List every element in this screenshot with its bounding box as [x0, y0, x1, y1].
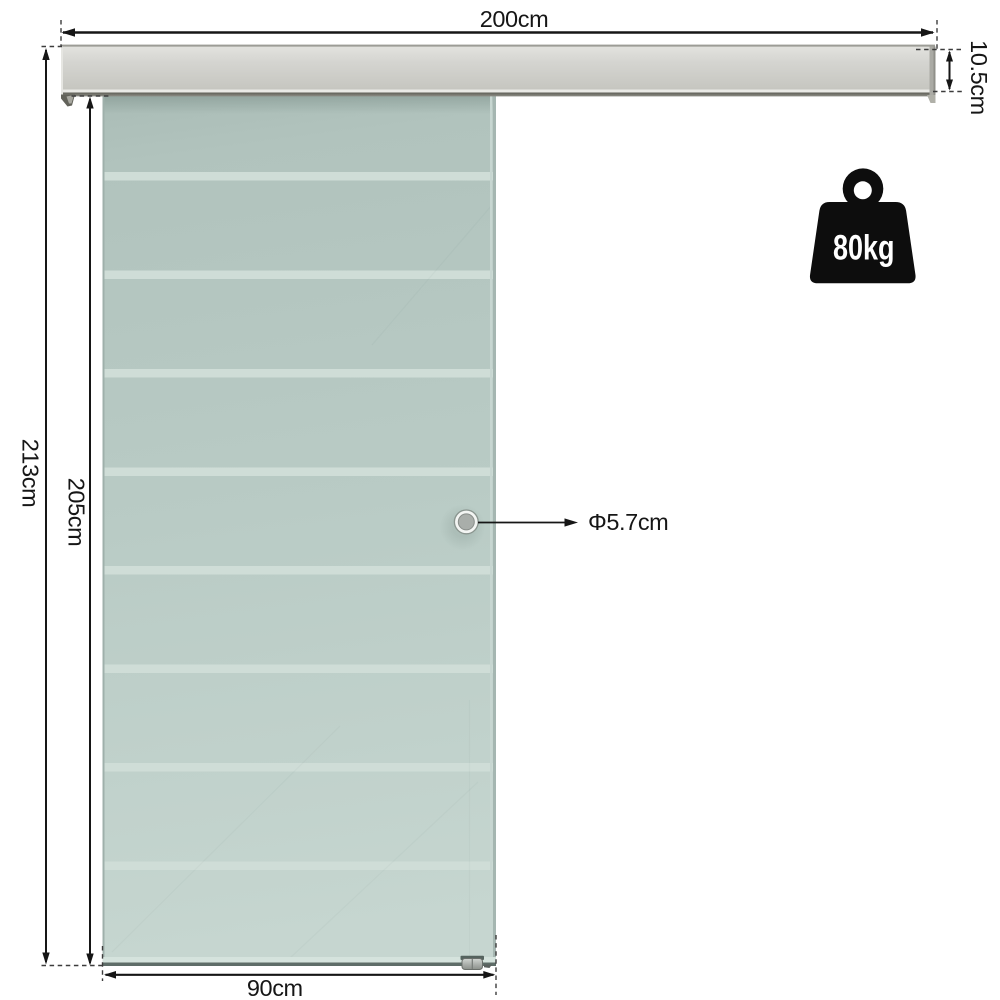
- svg-text:10.5cm: 10.5cm: [966, 40, 992, 115]
- svg-text:90cm: 90cm: [247, 975, 303, 1000]
- svg-text:213cm: 213cm: [18, 439, 44, 508]
- svg-text:205cm: 205cm: [64, 478, 90, 547]
- svg-text:80kg: 80kg: [833, 227, 894, 268]
- svg-text:Φ5.7cm: Φ5.7cm: [588, 509, 668, 535]
- svg-text:200cm: 200cm: [480, 6, 549, 32]
